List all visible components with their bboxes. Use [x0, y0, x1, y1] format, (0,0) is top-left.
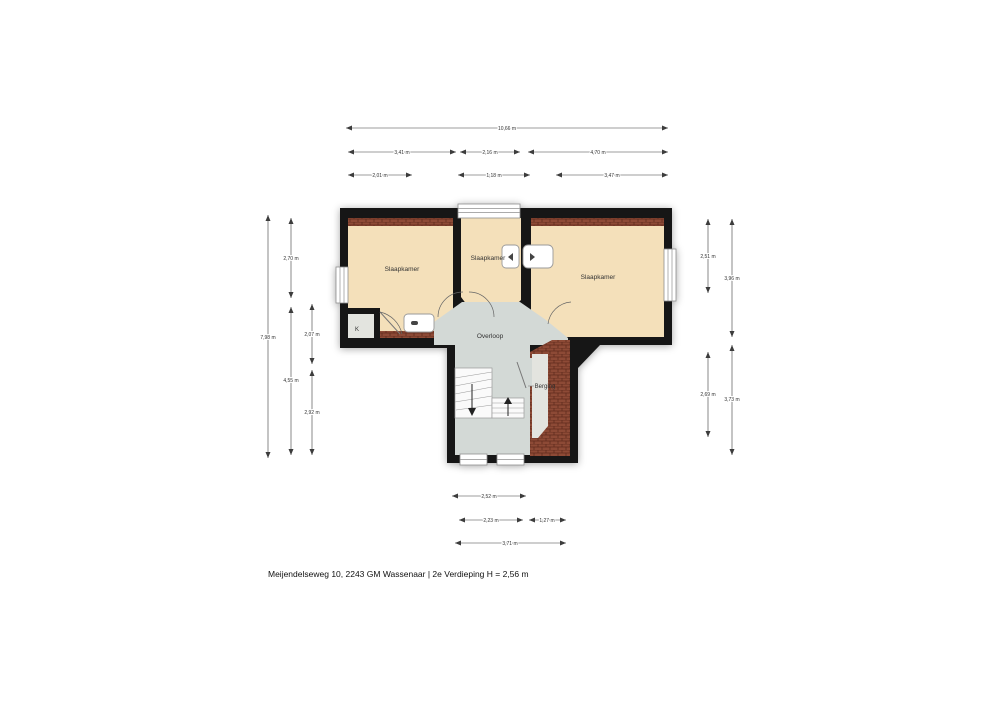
dim-left-inner-upper: 2,07 m	[304, 304, 319, 364]
dimension-label: 1,18 m	[486, 173, 501, 179]
dim-top-r2-right: 4,70 m	[528, 150, 668, 156]
dim-left-inner-lower: 2,92 m	[304, 370, 319, 455]
dimension-label: 4,55 m	[283, 378, 298, 384]
window-left-wall	[336, 267, 348, 303]
dim-left-total: 7,98 m	[260, 215, 275, 458]
dim-left-upper: 2,70 m	[283, 218, 298, 298]
dim-bottom-r2-left: 2,23 m	[459, 518, 523, 524]
dimension-label: 3,96 m	[724, 276, 739, 282]
room-label-closet: K	[355, 327, 359, 333]
room-label-bedroom-middle: Slaapkamer	[471, 255, 507, 262]
dim-top-r3-mid: 1,18 m	[458, 173, 530, 179]
window-right-wall	[664, 249, 676, 301]
dimension-label: 3,47 m	[604, 173, 619, 179]
dimension-label: 2,07 m	[304, 332, 319, 338]
dim-right-inner-lower: 2,69 m	[700, 352, 715, 437]
closet-interior	[348, 314, 374, 338]
dormer-window-top	[458, 204, 520, 218]
building	[336, 204, 676, 465]
window-bottom-left	[460, 454, 487, 465]
dimension-label: 2,69 m	[700, 392, 715, 398]
caption: Meijendelseweg 10, 2243 GM Wassenaar | 2…	[268, 569, 529, 579]
sloped-roof-strip-right-top	[531, 218, 664, 226]
dim-right-inner-upper: 2,51 m	[700, 219, 715, 293]
dimension-label: 2,51 m	[700, 254, 715, 260]
room-label-landing: Overloop	[477, 333, 504, 340]
dim-left-lower: 4,55 m	[283, 307, 298, 455]
dim-bottom-r1: 2,52 m	[452, 494, 526, 500]
dim-top-r2-mid: 2,16 m	[460, 150, 520, 156]
dimension-label: 3,71 m	[502, 541, 517, 547]
floorplan-drawing: Slaapkamer Slaapkamer Slaapkamer Overloo…	[0, 0, 1000, 707]
dimension-label: 10,66 m	[498, 126, 516, 132]
room-label-bedroom-right: Slaapkamer	[581, 274, 617, 281]
dimension-label: 4,70 m	[590, 150, 605, 156]
dimension-label: 2,52 m	[481, 494, 496, 500]
dim-top-r2-left: 3,41 m	[348, 150, 456, 156]
roof-window-icon-right	[523, 245, 553, 268]
room-label-storage: Berging	[535, 384, 556, 390]
dim-top-r3-right: 3,47 m	[556, 173, 668, 179]
roof-window-icon-left-room	[404, 314, 434, 332]
dimension-label: 7,98 m	[260, 335, 275, 341]
room-label-bedroom-left: Slaapkamer	[385, 266, 421, 273]
room-storage	[532, 354, 548, 438]
dim-bottom-r3: 3,71 m	[455, 541, 566, 547]
window-bottom-right	[497, 454, 524, 465]
dim-top-r3-left: 2,01 m	[348, 173, 412, 179]
dimension-label: 1,27 m	[539, 518, 554, 524]
berging-door-opening	[524, 358, 532, 386]
dimension-label: 2,70 m	[283, 256, 298, 262]
dim-right-outer-upper: 3,96 m	[724, 219, 739, 337]
floorplan-page: Slaapkamer Slaapkamer Slaapkamer Overloo…	[0, 0, 1000, 707]
dim-top-total: 10,66 m	[346, 126, 668, 132]
dimension-label: 3,73 m	[724, 397, 739, 403]
dimension-label: 2,01 m	[372, 173, 387, 179]
dimension-label: 3,41 m	[394, 150, 409, 156]
dim-right-outer-lower: 3,73 m	[724, 345, 739, 455]
dimension-label: 2,16 m	[482, 150, 497, 156]
dim-bottom-r2-right: 1,27 m	[529, 518, 566, 524]
dimension-label: 2,23 m	[483, 518, 498, 524]
sloped-roof-strip-left-top	[348, 218, 453, 226]
closet-wall-right	[374, 308, 380, 338]
dimension-label: 2,92 m	[304, 410, 319, 416]
